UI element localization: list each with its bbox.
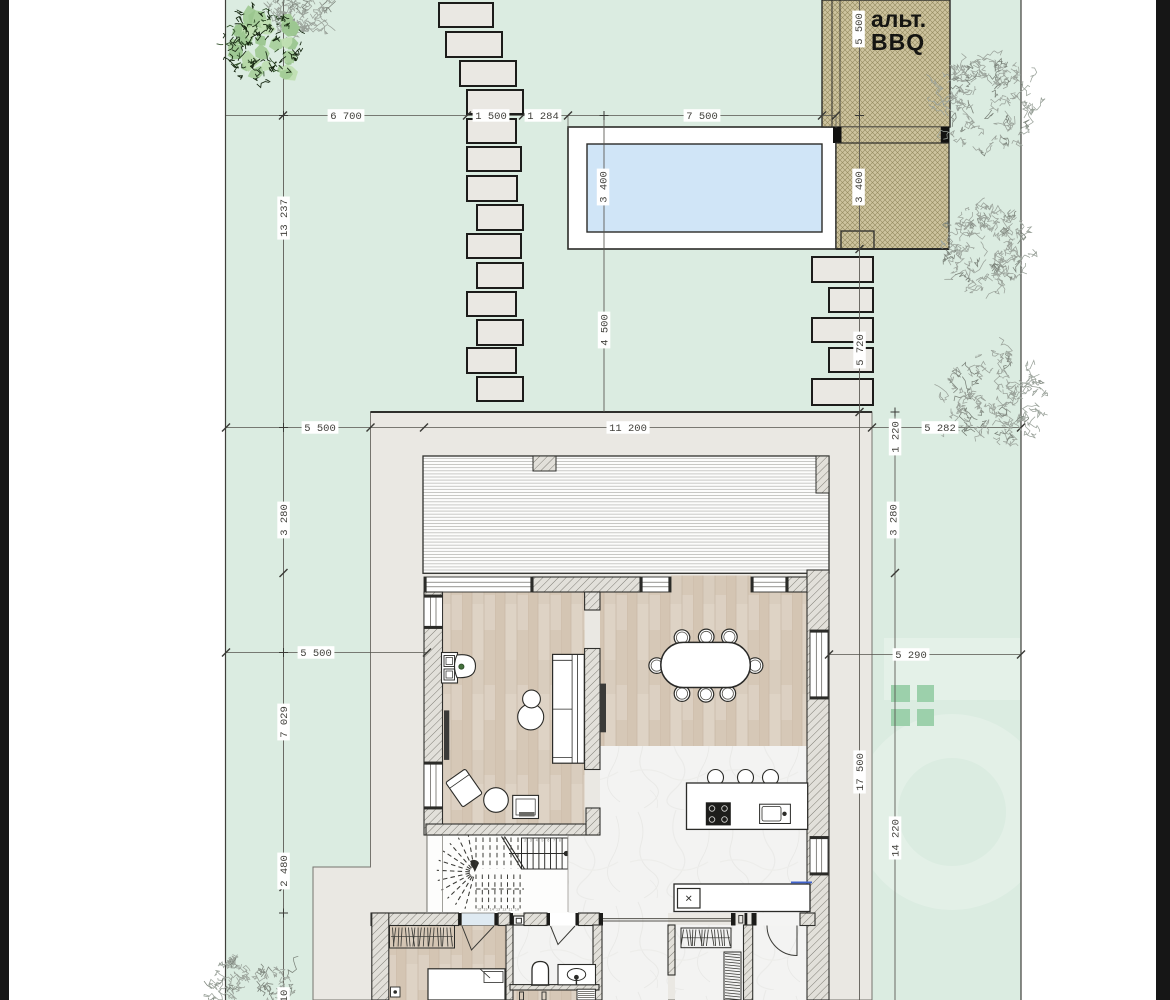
svg-text:13 237: 13 237 (279, 199, 291, 237)
svg-text:5 720: 5 720 (855, 334, 867, 366)
svg-text:BBQ: BBQ (871, 29, 925, 55)
svg-text:3 400: 3 400 (599, 171, 611, 203)
svg-text:3 280: 3 280 (889, 504, 901, 536)
svg-text:11: 11 (509, 909, 513, 913)
svg-text:14: 14 (490, 909, 494, 913)
svg-text:4 500: 4 500 (600, 314, 612, 346)
svg-text:3 400: 3 400 (854, 171, 866, 203)
svg-text:5: 5 (541, 840, 543, 844)
svg-text:14 220: 14 220 (891, 819, 903, 857)
svg-text:1 220: 1 220 (891, 421, 903, 453)
svg-text:1 284: 1 284 (527, 111, 559, 123)
svg-text:5 500: 5 500 (304, 423, 336, 435)
svg-text:11 200: 11 200 (609, 423, 647, 435)
svg-text:4: 4 (536, 840, 538, 844)
svg-text:6: 6 (547, 840, 549, 844)
svg-text:7 029: 7 029 (279, 706, 291, 738)
svg-text:7: 7 (553, 840, 555, 844)
svg-text:2 480: 2 480 (279, 855, 291, 887)
svg-text:8: 8 (559, 840, 561, 844)
svg-text:2: 2 (524, 840, 526, 844)
svg-text:5 500: 5 500 (300, 648, 332, 660)
svg-text:10: 10 (515, 909, 519, 913)
svg-text:5 282: 5 282 (924, 423, 956, 435)
svg-text:1 500: 1 500 (475, 111, 507, 123)
svg-text:6 700: 6 700 (330, 111, 362, 123)
svg-text:7 500: 7 500 (686, 111, 718, 123)
svg-text:5 500: 5 500 (854, 13, 866, 45)
svg-text:3 280: 3 280 (279, 504, 291, 536)
svg-text:15: 15 (483, 909, 487, 913)
svg-text:17 500: 17 500 (855, 753, 867, 791)
svg-text:3: 3 (530, 840, 532, 844)
svg-text:5 290: 5 290 (895, 650, 927, 662)
svg-text:10: 10 (279, 990, 291, 1000)
svg-text:13: 13 (496, 909, 500, 913)
svg-text:16: 16 (477, 909, 481, 913)
svg-text:12: 12 (502, 909, 506, 913)
